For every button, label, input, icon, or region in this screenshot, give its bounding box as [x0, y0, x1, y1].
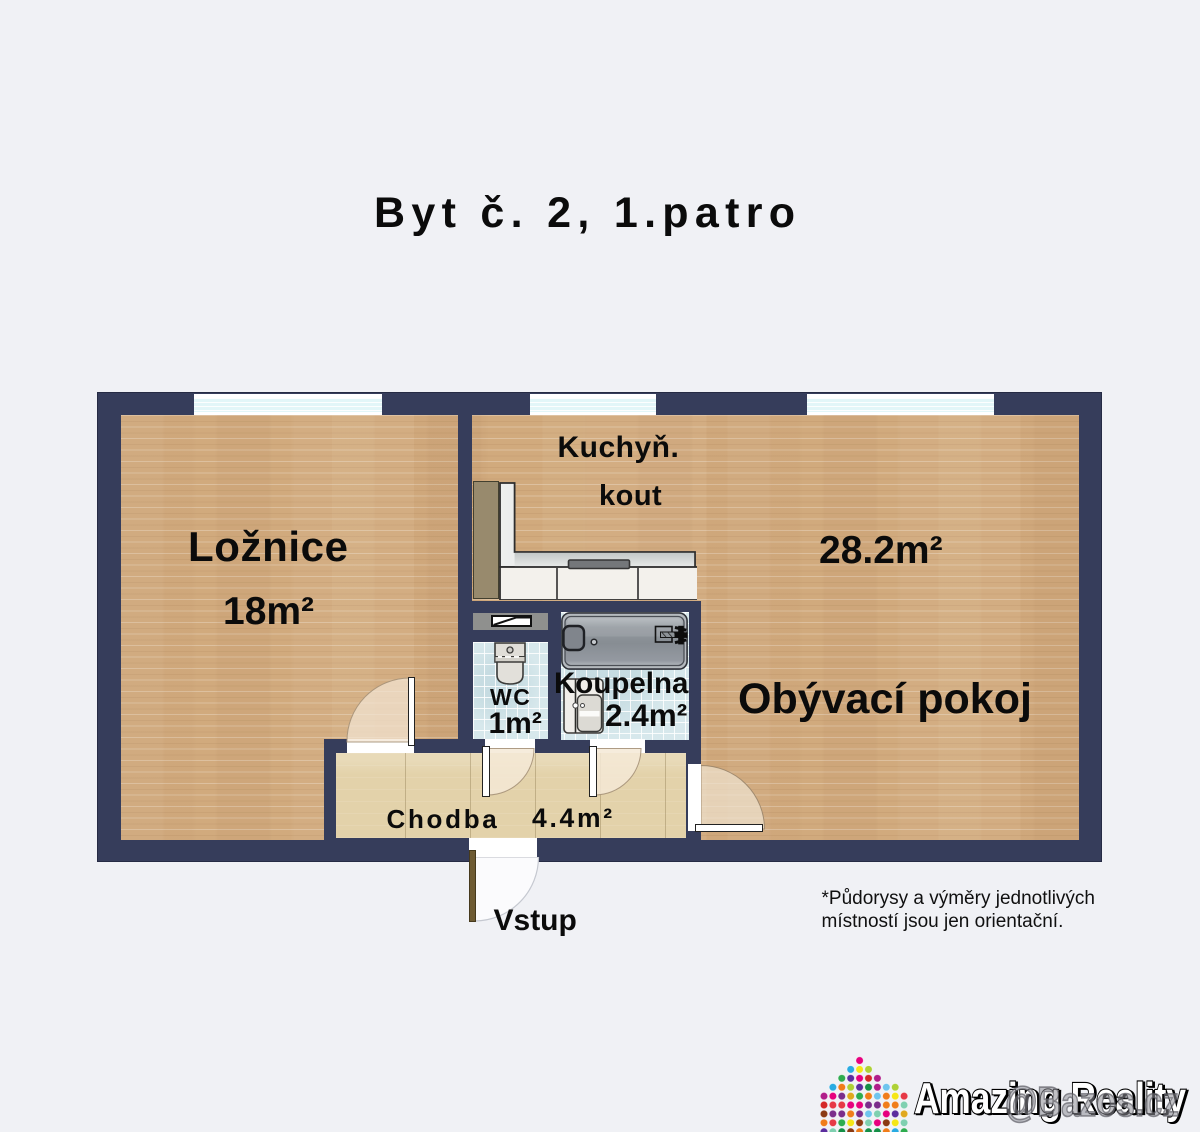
svg-text:@Bazos.cz: @Bazos.cz: [1005, 1078, 1179, 1125]
